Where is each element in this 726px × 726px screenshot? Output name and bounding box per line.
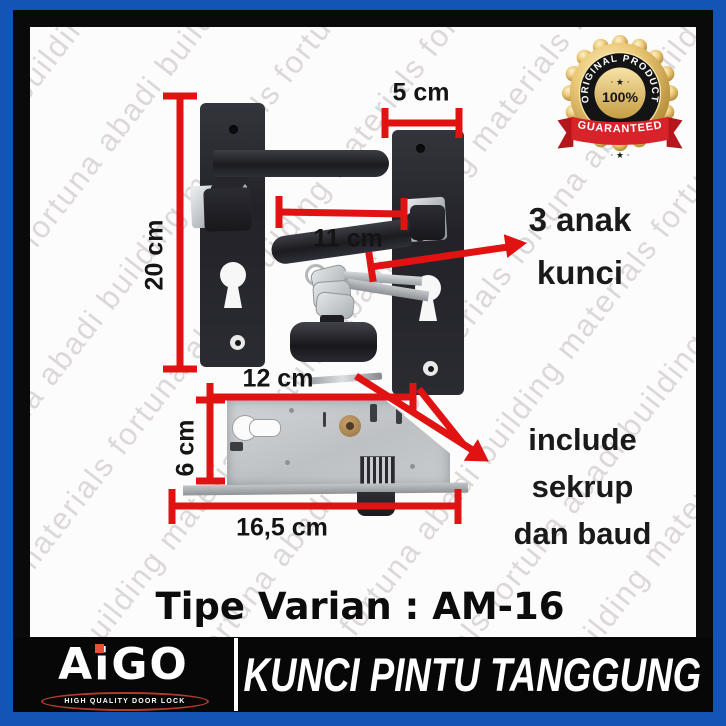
brand-tagline: HIGH QUALITY DOOR LOCK: [64, 698, 185, 705]
brand-logo: AiGO HIGH QUALITY DOOR LOCK: [13, 637, 234, 712]
lock-rivet: [289, 408, 294, 413]
brand-letter-a: A: [58, 639, 94, 690]
cylinder-lock: [290, 322, 377, 362]
product-name: KUNCI PINTU TANGGUNG: [244, 647, 702, 702]
guarantee-badge: ORIGINAL PRODUCT · ★ · 100% GUARANTEED ·…: [554, 35, 686, 167]
label-5cm: 5 cm: [393, 79, 450, 108]
product-image-area: abadi building materials fortuna abadi b…: [30, 27, 696, 637]
label-11cm: 11 cm: [313, 225, 383, 254]
label-16-5cm: 16,5 cm: [236, 514, 328, 543]
right-handle-plate: [392, 130, 464, 395]
label-12cm: 12 cm: [243, 365, 314, 394]
right-lever-grip: [410, 205, 445, 240]
lock-spring-mechanism: [360, 456, 395, 485]
brand-tagline-oval: HIGH QUALITY DOOR LOCK: [41, 692, 209, 711]
badge-percent: 100%: [602, 89, 638, 105]
note-keys: 3 anak kunci: [500, 193, 660, 299]
lock-rivet: [410, 464, 415, 469]
right-plate-screw-hole: [416, 144, 425, 153]
note-include: include sekrup dan baud: [485, 416, 680, 557]
label-20cm: 20 cm: [141, 220, 170, 291]
label-6cm: 6 cm: [172, 420, 201, 477]
lock-slot: [370, 404, 377, 422]
lock-rivet: [285, 460, 290, 465]
latch-bolt: [357, 492, 395, 516]
note-keys-line2: kunci: [500, 246, 660, 299]
brand-wordmark: AiGO: [13, 639, 234, 690]
note-keys-line1: 3 anak: [500, 193, 660, 246]
product-name-area: KUNCI PINTU TANGGUNG: [238, 637, 713, 712]
badge-stars-top: · ★ ·: [610, 78, 629, 88]
left-plate-bottom-hole: [230, 335, 245, 350]
left-lever-grip: [203, 187, 251, 232]
note-include-line2: dan baud: [485, 510, 680, 557]
lock-keyhole-slot-arm: [249, 419, 281, 437]
variant-text: Tipe Varian : AM-16: [50, 585, 670, 628]
note-include-line1: include sekrup: [485, 416, 680, 510]
top-lever-handle: [213, 150, 389, 177]
right-plate-bottom-hole: [423, 361, 438, 376]
footer-bar: AiGO HIGH QUALITY DOOR LOCK KUNCI PINTU …: [13, 637, 713, 712]
lock-brass-hub: [339, 415, 361, 437]
lock-bracket: [230, 442, 243, 451]
lock-slot: [323, 412, 326, 427]
left-handle-plate: [200, 103, 265, 367]
left-plate-screw-hole: [229, 125, 238, 134]
brand-letter-i: i: [94, 639, 111, 690]
brand-letters-go: GO: [111, 639, 189, 690]
badge-stars-bottom: · ★ ·: [610, 151, 629, 161]
